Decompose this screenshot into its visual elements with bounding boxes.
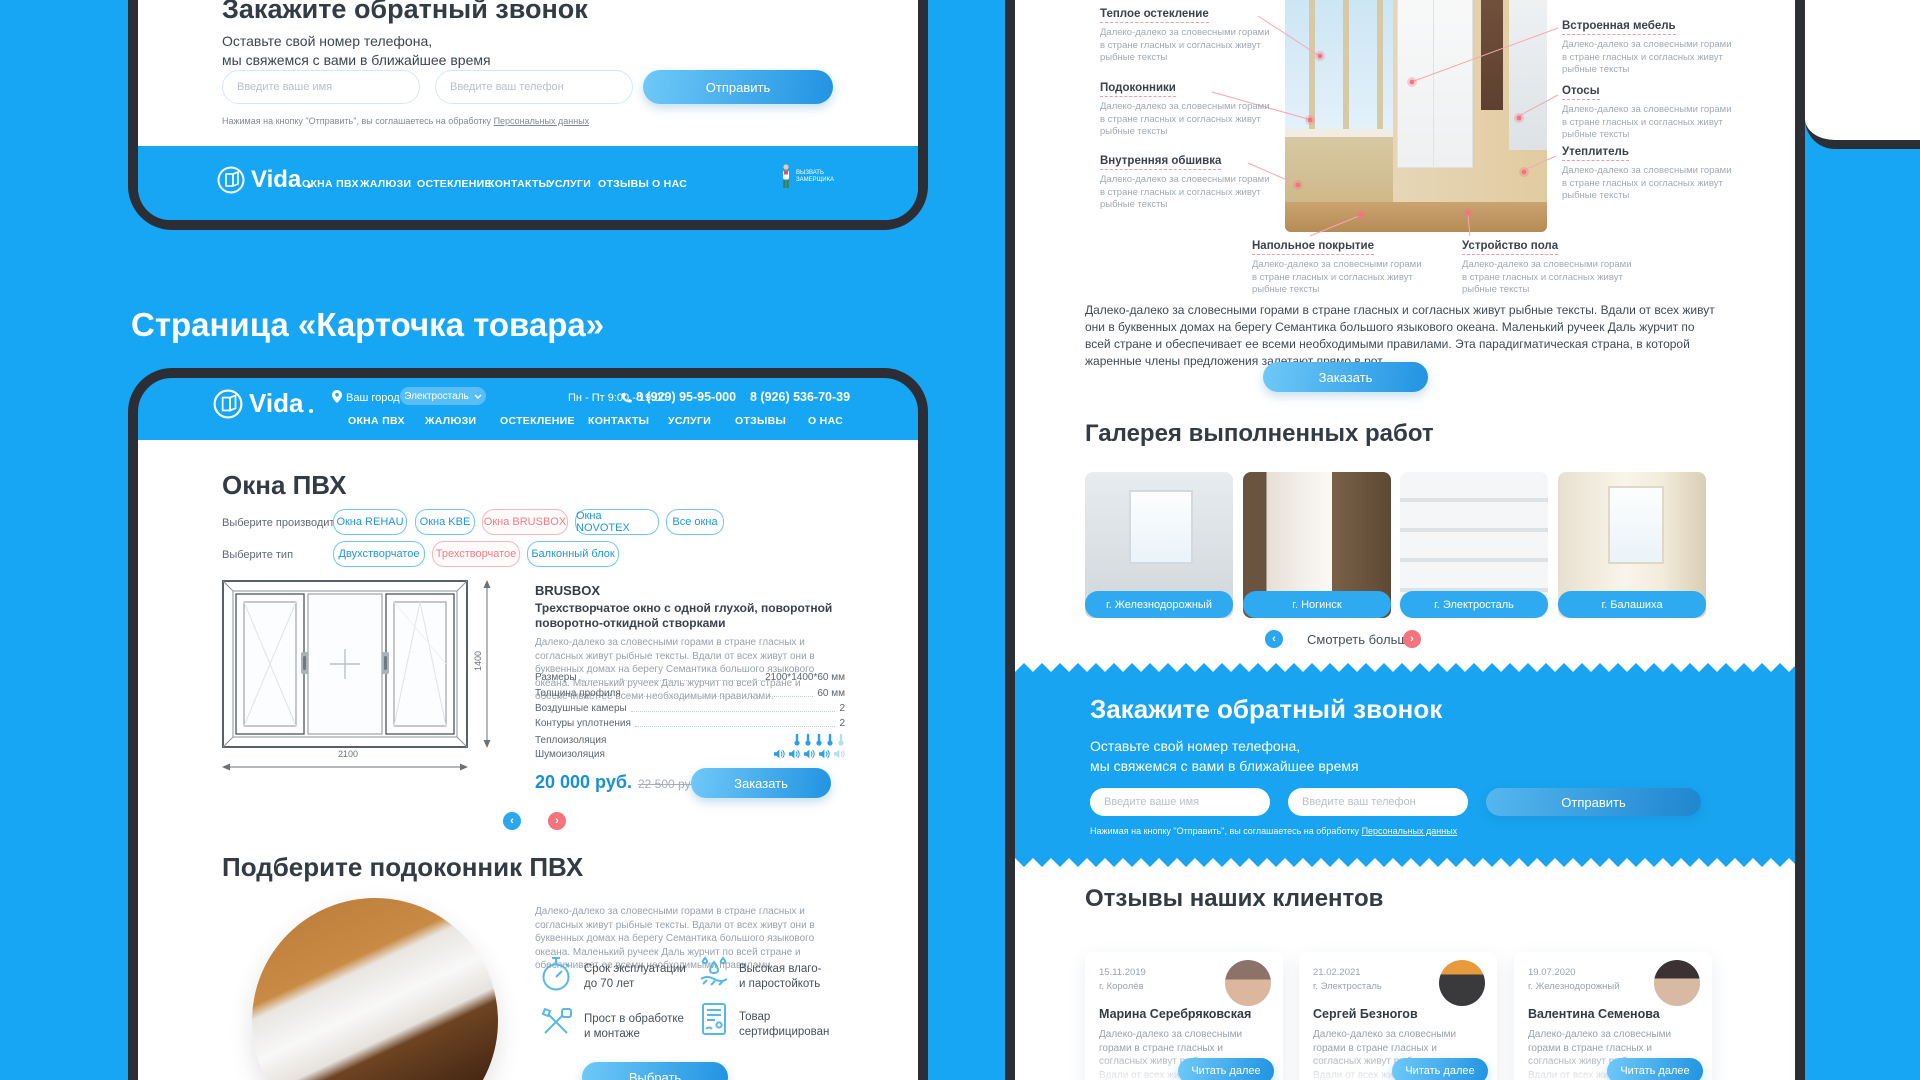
gallery-photo-window xyxy=(1129,490,1193,564)
window-drawing: 1400 2100 xyxy=(222,580,468,753)
nav-item-osteklenie[interactable]: ОСТЕКЛЕНИЕ xyxy=(500,415,575,427)
gallery-card[interactable]: г. Ногинск xyxy=(1243,472,1391,618)
nav-item-otzyvy[interactable]: ОТЗЫВЫ xyxy=(735,415,786,427)
review-card: 21.02.2021 г. Электросталь Сергей Безног… xyxy=(1299,952,1497,1080)
gallery-next-button[interactable]: › xyxy=(1403,630,1421,648)
gallery-city-pill[interactable]: г. Ногинск xyxy=(1243,591,1391,618)
certificate-icon xyxy=(695,1000,733,1043)
nav-item-uslugi[interactable]: УСЛУГИ xyxy=(548,178,591,190)
disclaimer-text: Нажимая на кнопку "Отправить", вы соглаш… xyxy=(222,116,494,126)
callback-title: Закажите обратный звонок xyxy=(222,0,588,25)
phone-number-1[interactable]: 8 (929) 95-95-000 xyxy=(636,390,736,404)
read-more-button[interactable]: Читать далее xyxy=(1607,1058,1703,1080)
gallery-card[interactable]: г. Балашиха xyxy=(1558,472,1706,618)
chevron-down-icon xyxy=(474,394,482,399)
gallery-card[interactable]: г. Электросталь xyxy=(1400,472,1548,618)
feature-label: Срок эксплуатациидо 70 лет xyxy=(584,962,686,992)
phone-input[interactable]: Введите ваш телефон xyxy=(435,70,633,104)
callout-insulation: Утеплитель Далеко-далеко за словесными г… xyxy=(1562,142,1734,203)
logo-icon xyxy=(217,166,245,194)
tools-icon xyxy=(537,1003,575,1046)
city-label: Ваш город xyxy=(346,392,400,404)
read-more-button[interactable]: Читать далее xyxy=(1178,1058,1274,1080)
design-canvas: Закажите обратный звонок Оставьте свой н… xyxy=(0,0,1920,1080)
zigzag-top xyxy=(1015,663,1795,672)
zigzag-bottom xyxy=(1015,858,1795,867)
nav-item-o-nas[interactable]: О НАС xyxy=(808,415,843,427)
nav-item-okna-pvh[interactable]: ОКНА ПВХ xyxy=(302,178,359,190)
logo-icon xyxy=(213,389,243,419)
disclaimer: Нажимая на кнопку "Отправить", вы соглаш… xyxy=(1090,826,1457,836)
avatar xyxy=(1225,960,1271,1006)
disclaimer: Нажимая на кнопку "Отправить", вы соглаш… xyxy=(222,116,589,126)
measurer-person-icon xyxy=(780,164,792,190)
review-date: 19.07.2020 xyxy=(1528,967,1576,978)
gallery-card[interactable]: г. Железнодорожный xyxy=(1085,472,1233,618)
avatar xyxy=(1654,960,1700,1006)
footer-nav-band: Vida ОКНА ПВХ ЖАЛЮЗИ ОСТЕКЛЕНИЕ КОНТАКТЫ… xyxy=(138,146,918,220)
logo-text: Vida xyxy=(249,388,303,419)
mockup-frame-top: Закажите обратный звонок Оставьте свой н… xyxy=(128,0,928,230)
filter-chip-novotex[interactable]: Окна NOVOTEX xyxy=(575,509,659,535)
location-pin-icon xyxy=(332,390,342,408)
callback-subtitle: Оставьте свой номер телефона, мы свяжемс… xyxy=(222,32,491,70)
order-button[interactable]: Заказать xyxy=(1263,362,1428,392)
callout-floor-covering: Напольное покрытие Далеко-далеко за слов… xyxy=(1252,236,1424,297)
choose-button[interactable]: Выбрать xyxy=(582,1062,728,1080)
spec-row: Воздушные камеры2 xyxy=(535,703,845,714)
measurer-label-2: замерщика xyxy=(796,177,834,184)
review-card: 15.11.2019 г. Королёв Марина Серебряковс… xyxy=(1085,952,1283,1080)
feature-label: Прост в обработкеи монтаже xyxy=(584,1012,684,1042)
nav-item-zhalyuzi[interactable]: ЖАЛЮЗИ xyxy=(425,415,476,427)
review-city: г. Электросталь xyxy=(1313,981,1382,992)
nav-item-osteklenie[interactable]: ОСТЕКЛЕНИЕ xyxy=(417,178,492,190)
carousel-prev-button[interactable]: ‹ xyxy=(503,812,521,830)
callout-sills: Подоконники Далеко-далеко за словесными … xyxy=(1100,78,1272,139)
callout-floor-structure: Устройство пола Далеко-далеко за словесн… xyxy=(1462,236,1634,297)
balcony-paragraph: Далеко-далеко за словесными горами в стр… xyxy=(1085,302,1715,370)
measurer-label-1: вызвать xyxy=(796,170,834,177)
review-card: 19.07.2020 г. Железнодорожный Валентина … xyxy=(1514,952,1712,1080)
page-title: Страница «Карточка товара» xyxy=(131,306,604,344)
phone-icon xyxy=(620,391,632,409)
product-price: 20 000 руб. xyxy=(535,772,632,793)
callout-builtin-furniture: Встроенная мебель Далеко-далеко за слове… xyxy=(1562,16,1734,77)
personal-data-link[interactable]: Персональных данных xyxy=(494,116,590,126)
nav-item-okna-pvh[interactable]: ОКНА ПВХ xyxy=(348,415,405,427)
speaker-icons xyxy=(770,749,845,760)
gallery-prev-button[interactable]: ‹ xyxy=(1265,630,1283,648)
name-input[interactable]: Введите ваше имя xyxy=(1090,788,1270,816)
carousel-next-button[interactable]: › xyxy=(548,812,566,830)
dimension-height-label: 1400 xyxy=(473,651,483,671)
callback-subtitle: Оставьте свой номер телефона,мы свяжемся… xyxy=(1090,736,1359,776)
logo[interactable]: Vida xyxy=(217,166,311,194)
callback-band: Закажите обратный звонок Оставьте свой н… xyxy=(1015,672,1795,858)
nav-item-kontakty[interactable]: КОНТАКТЫ xyxy=(588,415,649,427)
mockup-frame-balcony-page: Теплое остекление Далеко-далеко за слове… xyxy=(1005,0,1805,1080)
logo[interactable]: Vida xyxy=(213,388,313,419)
filter-chip-rehau[interactable]: Окна REHAU xyxy=(333,509,407,535)
mockup-frame-card-page: Vida Ваш город Электросталь Пн - Пт 9:00… xyxy=(128,368,928,1080)
review-name: Марина Серебряковская xyxy=(1099,1007,1251,1021)
nav-item-zhalyuzi[interactable]: ЖАЛЮЗИ xyxy=(360,178,411,190)
filter-chip-brusbox[interactable]: Окна BRUSBOX xyxy=(482,509,568,535)
type-chip-dvuh[interactable]: Двухстворчатое xyxy=(333,541,425,567)
nav-item-otzyvy[interactable]: ОТЗЫВЫ xyxy=(598,178,649,190)
callback-title: Закажите обратный звонок xyxy=(1090,694,1442,725)
read-more-button[interactable]: Читать далее xyxy=(1392,1058,1488,1080)
city-value: Электросталь xyxy=(404,391,469,402)
feature-label: Высокая влаго-и паростойкоть xyxy=(739,962,821,992)
spec-row: Шумоизоляция xyxy=(535,749,845,760)
review-name: Валентина Семенова xyxy=(1528,1007,1660,1021)
submit-button[interactable]: Отправить xyxy=(1486,788,1701,816)
thermometer-icons xyxy=(790,733,845,746)
dimension-width-label: 2100 xyxy=(334,749,362,759)
type-chip-treh[interactable]: Трехстворчатое xyxy=(432,541,520,567)
logo-text: Vida xyxy=(251,166,301,194)
water-drops-icon xyxy=(695,952,733,995)
catalog-title: Окна ПВХ xyxy=(222,470,346,501)
filter-chip-kbe[interactable]: Окна KBE xyxy=(415,509,475,535)
spec-row: Толщина профиля60 мм xyxy=(535,688,845,699)
callout-warm-glazing: Теплое остекление Далеко-далеко за слове… xyxy=(1100,4,1272,65)
callout-inner-cladding: Внутренняя обшивка Далеко-далеко за слов… xyxy=(1100,151,1272,212)
review-city: г. Железнодорожный xyxy=(1528,981,1620,992)
see-more-label[interactable]: Смотреть больше xyxy=(1307,632,1415,647)
spec-row: Размеры2100*1400*60 мм xyxy=(535,672,845,683)
product-name: BRUSBOX xyxy=(535,583,600,598)
gallery-city-pill[interactable]: г. Балашиха xyxy=(1558,591,1706,618)
spec-row: Контуры уплотнения2 xyxy=(535,718,845,729)
review-city: г. Королёв xyxy=(1099,981,1144,992)
disclaimer-text: Нажимая на кнопку "Отправить", вы соглаш… xyxy=(1090,826,1362,836)
stopwatch-icon xyxy=(537,955,575,998)
spec-row: Теплоизоляция xyxy=(535,733,845,746)
submit-button[interactable]: Отправить xyxy=(643,70,833,104)
nav-item-o-nas[interactable]: О НАС xyxy=(652,178,687,190)
review-date: 15.11.2019 xyxy=(1099,967,1146,978)
name-input[interactable]: Введите ваше имя xyxy=(222,70,420,104)
measurer-widget[interactable]: вызвать замерщика xyxy=(780,164,834,190)
phone-number-2[interactable]: 8 (926) 536-70-39 xyxy=(750,390,850,404)
type-label: Выберите тип xyxy=(222,549,293,561)
type-chip-balkon[interactable]: Балконный блок xyxy=(527,541,619,567)
reviews-title: Отзывы наших клиентов xyxy=(1085,885,1383,913)
gallery-photo-window xyxy=(1608,486,1664,564)
city-selector[interactable]: Электросталь xyxy=(400,387,486,405)
avatar xyxy=(1439,960,1485,1006)
product-subtitle: Трехстворчатое окно с одной глухой, пово… xyxy=(535,601,841,631)
review-date: 21.02.2021 xyxy=(1313,967,1361,978)
callout-slopes: Отосы Далеко-далеко за словесными горами… xyxy=(1562,81,1734,142)
personal-data-link[interactable]: Персональных данных xyxy=(1362,826,1458,836)
order-button[interactable]: Заказать xyxy=(691,768,831,798)
gallery-city-pill[interactable]: г. Железнодорожный xyxy=(1085,591,1233,618)
nav-item-uslugi[interactable]: УСЛУГИ xyxy=(668,415,711,427)
filter-chip-all[interactable]: Все окна xyxy=(666,509,724,535)
nav-item-kontakty[interactable]: КОНТАКТЫ xyxy=(488,178,549,190)
phone-input[interactable]: Введите ваш телефон xyxy=(1288,788,1468,816)
adjacent-frame-fragment xyxy=(1805,0,1920,149)
logo-dot xyxy=(309,409,313,413)
dimension-width-arrow xyxy=(222,760,468,774)
feature-label: Товарсертифицирован xyxy=(739,1010,829,1040)
gallery-city-pill[interactable]: г. Электросталь xyxy=(1400,591,1548,618)
gallery-title: Галерея выполненных работ xyxy=(1085,420,1434,448)
sill-title: Подберите подоконник ПВХ xyxy=(222,852,583,883)
review-name: Сергей Безногов xyxy=(1313,1007,1418,1021)
